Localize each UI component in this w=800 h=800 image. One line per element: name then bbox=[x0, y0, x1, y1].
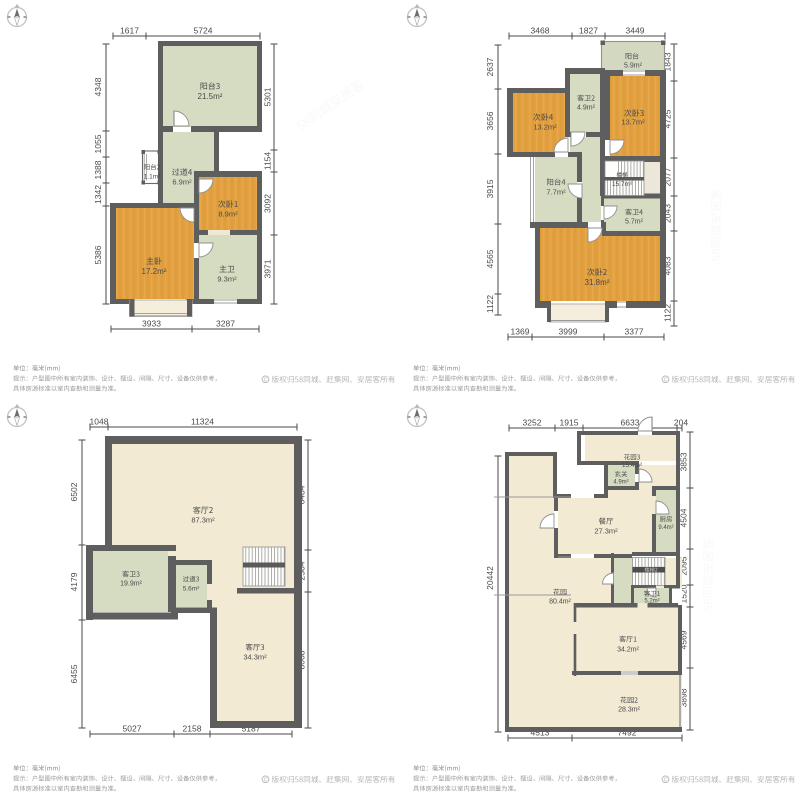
svg-text:2158: 2158 bbox=[183, 724, 202, 734]
svg-text:15.7m²: 15.7m² bbox=[612, 181, 633, 188]
svg-text:204: 204 bbox=[674, 418, 688, 428]
svg-text:11324: 11324 bbox=[191, 417, 214, 427]
svg-text:5301: 5301 bbox=[263, 87, 273, 106]
svg-text:20442: 20442 bbox=[485, 566, 495, 590]
svg-text:5.9m²: 5.9m² bbox=[624, 63, 643, 70]
svg-text:C: C bbox=[664, 778, 668, 784]
svg-text:9.3m²: 9.3m² bbox=[217, 275, 237, 284]
svg-text:2637: 2637 bbox=[485, 57, 495, 76]
svg-text:28.3m²: 28.3m² bbox=[618, 707, 640, 714]
svg-text:34.2m²: 34.2m² bbox=[617, 647, 639, 654]
svg-text:3971: 3971 bbox=[263, 259, 273, 278]
svg-text:C: C bbox=[264, 778, 268, 784]
svg-text:19.9m²: 19.9m² bbox=[120, 581, 142, 588]
svg-text:6502: 6502 bbox=[69, 482, 79, 501]
svg-text:13.7m²: 13.7m² bbox=[621, 118, 645, 127]
svg-text:13.2m²: 13.2m² bbox=[533, 123, 557, 132]
svg-text:21.5m²: 21.5m² bbox=[198, 92, 223, 101]
svg-text:5.2m²: 5.2m² bbox=[644, 599, 659, 605]
svg-text:1827: 1827 bbox=[579, 26, 598, 36]
svg-text:5386: 5386 bbox=[93, 245, 103, 264]
svg-text:4565: 4565 bbox=[485, 249, 495, 268]
svg-text:3287: 3287 bbox=[216, 319, 235, 329]
svg-text:31.8m²: 31.8m² bbox=[585, 278, 610, 287]
svg-text:5.6m²: 5.6m² bbox=[183, 585, 200, 592]
svg-text:80.4m²: 80.4m² bbox=[549, 599, 571, 606]
svg-text:1915: 1915 bbox=[560, 418, 579, 428]
svg-text:8.9m²: 8.9m² bbox=[218, 210, 238, 219]
svg-text:1369: 1369 bbox=[511, 327, 530, 337]
svg-text:1617: 1617 bbox=[120, 26, 139, 36]
svg-text:87.3m²: 87.3m² bbox=[191, 516, 215, 525]
svg-text:6.9m²: 6.9m² bbox=[172, 178, 192, 187]
svg-text:1122: 1122 bbox=[485, 295, 495, 314]
svg-text:1048: 1048 bbox=[90, 417, 109, 427]
svg-text:3092: 3092 bbox=[263, 194, 273, 213]
svg-text:6455: 6455 bbox=[69, 664, 79, 683]
svg-text:1342: 1342 bbox=[93, 185, 103, 204]
svg-text:3449: 3449 bbox=[626, 26, 645, 36]
svg-text:1154: 1154 bbox=[263, 152, 273, 171]
svg-text:3377: 3377 bbox=[625, 327, 644, 337]
svg-text:3656: 3656 bbox=[485, 111, 495, 130]
svg-text:5724: 5724 bbox=[194, 26, 213, 36]
svg-text:5.7m²: 5.7m² bbox=[625, 219, 644, 226]
svg-text:7.7m²: 7.7m² bbox=[546, 188, 566, 197]
svg-text:6633: 6633 bbox=[621, 418, 640, 428]
svg-text:1055: 1055 bbox=[93, 134, 103, 153]
svg-text:5027: 5027 bbox=[123, 724, 142, 734]
svg-text:C: C bbox=[264, 378, 268, 384]
svg-text:17.2m²: 17.2m² bbox=[142, 267, 167, 276]
svg-text:4.9m²: 4.9m² bbox=[613, 480, 628, 486]
svg-text:4.9m²: 4.9m² bbox=[577, 105, 596, 112]
svg-text:4348: 4348 bbox=[93, 77, 103, 96]
svg-text:4179: 4179 bbox=[69, 572, 79, 591]
svg-text:34.3m²: 34.3m² bbox=[243, 653, 267, 662]
svg-text:1388: 1388 bbox=[93, 160, 103, 179]
svg-text:C: C bbox=[664, 378, 668, 384]
svg-text:15.4m²: 15.4m² bbox=[622, 462, 643, 469]
svg-text:3999: 3999 bbox=[559, 327, 578, 337]
svg-text:3468: 3468 bbox=[531, 26, 550, 36]
svg-text:9.4m²: 9.4m² bbox=[658, 525, 673, 531]
svg-text:3915: 3915 bbox=[485, 179, 495, 198]
svg-text:3252: 3252 bbox=[523, 418, 542, 428]
svg-text:1.1m²: 1.1m² bbox=[144, 173, 161, 180]
svg-text:3933: 3933 bbox=[142, 319, 161, 329]
svg-text:27.3m²: 27.3m² bbox=[594, 527, 618, 536]
